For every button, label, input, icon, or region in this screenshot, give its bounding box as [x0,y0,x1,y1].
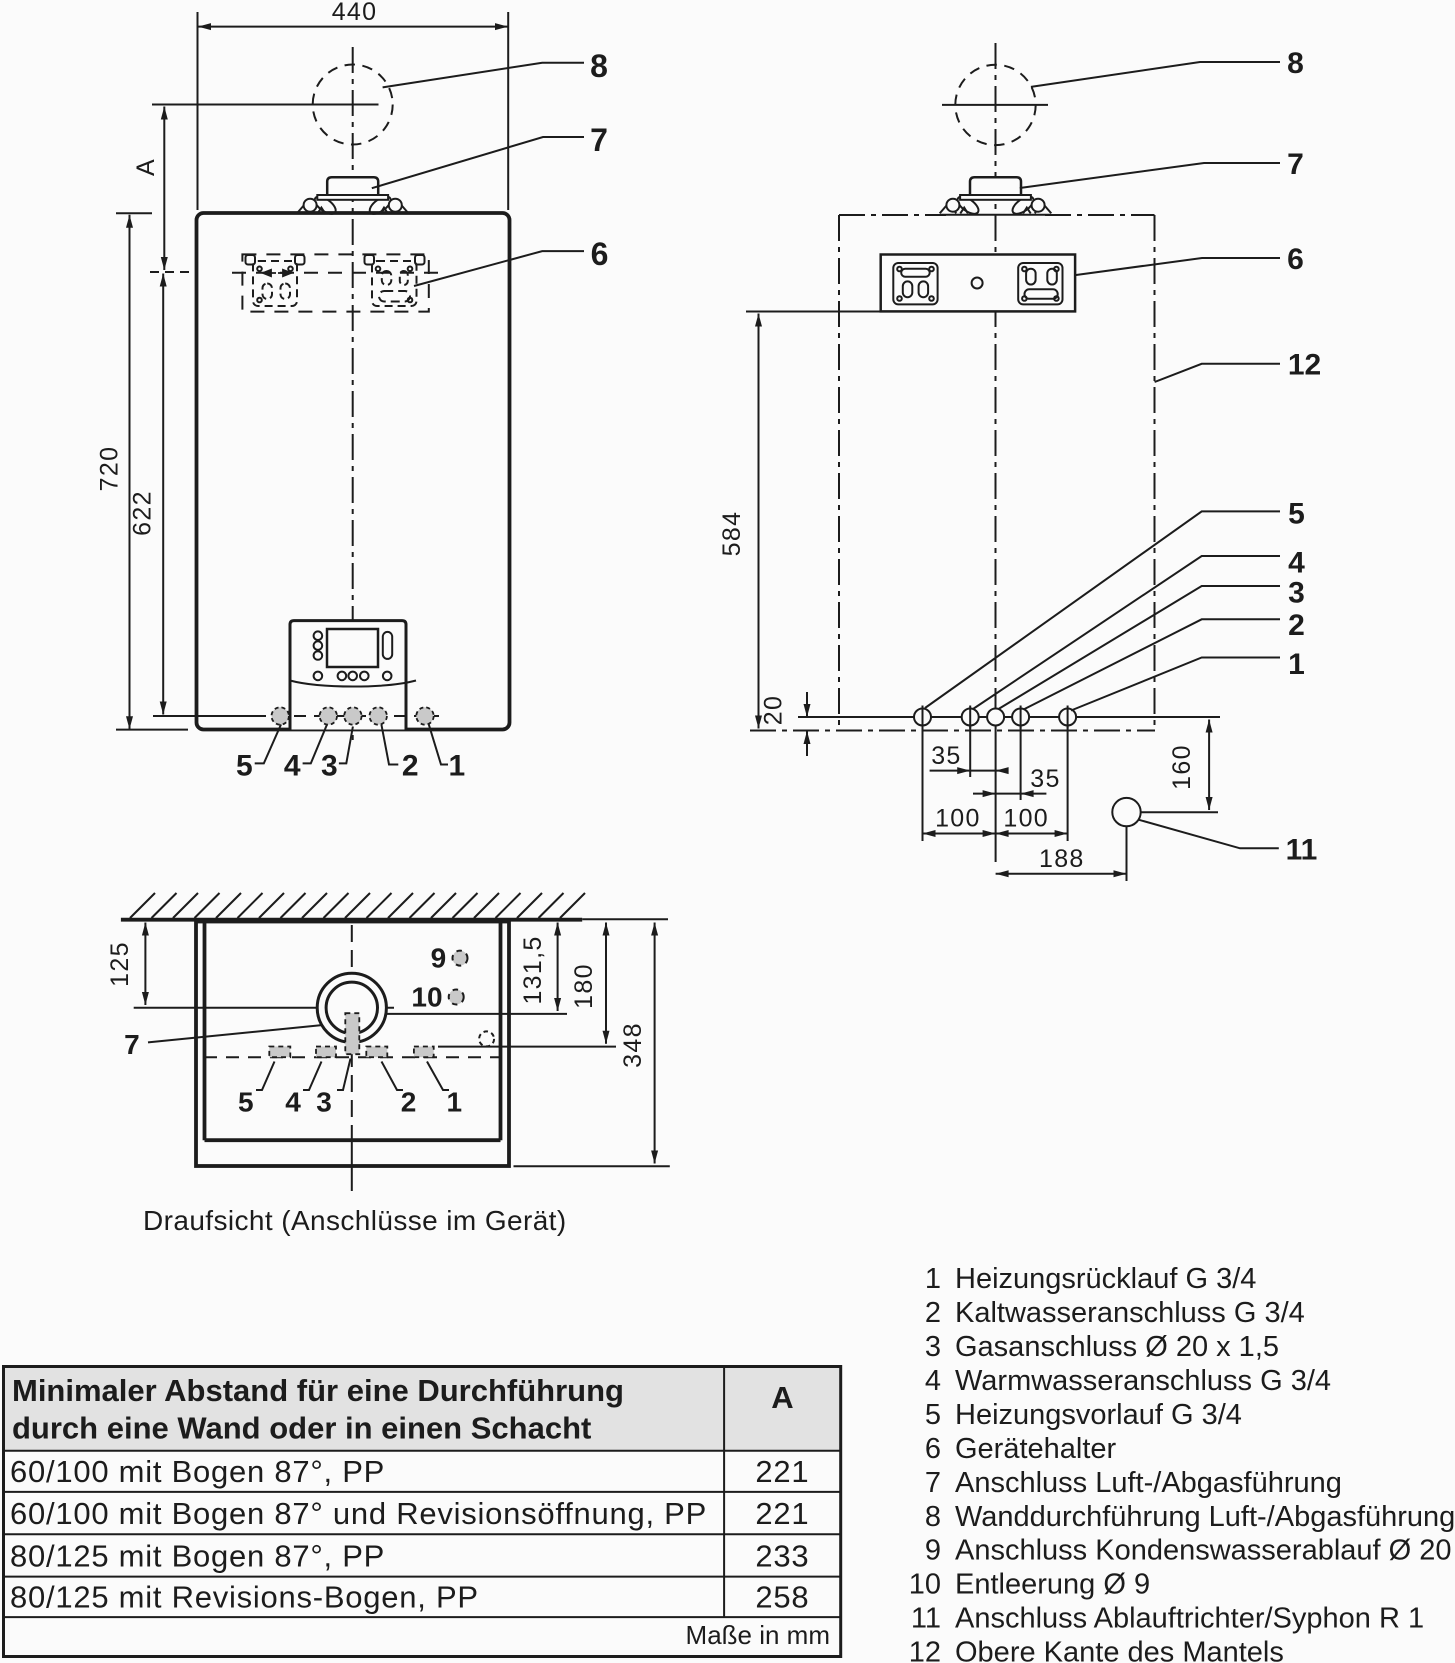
svg-text:9: 9 [431,943,447,974]
svg-text:100: 100 [1003,805,1049,833]
svg-text:11: 11 [1286,834,1318,867]
svg-text:4: 4 [925,1365,941,1397]
svg-text:Gasanschluss Ø 20 x 1,5: Gasanschluss Ø 20 x 1,5 [955,1331,1279,1363]
svg-text:5: 5 [238,1086,254,1117]
svg-text:1: 1 [1288,648,1305,681]
svg-text:12: 12 [909,1637,941,1663]
svg-text:100: 100 [935,805,981,833]
svg-text:720: 720 [96,446,124,492]
svg-text:160: 160 [1168,744,1196,790]
svg-text:4: 4 [285,1086,301,1117]
svg-text:60/100 mit Bogen 87° und Revis: 60/100 mit Bogen 87° und Revisionsöffnun… [10,1496,707,1531]
svg-text:7: 7 [590,122,608,158]
svg-text:80/125 mit Bogen 87°, PP: 80/125 mit Bogen 87°, PP [10,1538,385,1573]
svg-text:2: 2 [925,1297,941,1329]
svg-text:622: 622 [128,490,156,536]
svg-text:3: 3 [925,1331,941,1363]
svg-text:durch eine Wand oder in einen: durch eine Wand oder in einen Schacht [12,1411,591,1446]
svg-text:Warmwasseranschluss G 3/4: Warmwasseranschluss G 3/4 [955,1365,1331,1397]
svg-text:3: 3 [316,1086,332,1117]
svg-text:3: 3 [321,750,338,783]
svg-text:12: 12 [1288,349,1321,382]
svg-text:5: 5 [1288,498,1305,531]
svg-text:7: 7 [124,1029,140,1060]
svg-text:Maße in mm: Maße in mm [686,1620,830,1650]
svg-text:6: 6 [1287,243,1304,276]
svg-text:20: 20 [760,695,788,725]
svg-text:10: 10 [411,982,442,1013]
svg-text:11: 11 [911,1603,941,1635]
svg-text:188: 188 [1039,845,1085,873]
svg-text:221: 221 [755,1454,809,1489]
svg-text:1: 1 [447,1086,463,1117]
svg-text:Wanddurchführung Luft-/Abgasfü: Wanddurchführung Luft-/Abgasführung [955,1501,1455,1533]
svg-text:6: 6 [925,1433,941,1465]
svg-text:Minimaler Abstand für eine Dur: Minimaler Abstand für eine Durchführung [12,1373,624,1408]
svg-text:131,5: 131,5 [519,935,547,1004]
svg-text:35: 35 [931,742,961,770]
svg-text:Entleerung Ø 9: Entleerung Ø 9 [955,1569,1150,1601]
svg-text:1: 1 [925,1263,941,1295]
svg-text:440: 440 [332,0,378,26]
svg-text:9: 9 [925,1535,941,1567]
svg-text:Kaltwasseranschluss G 3/4: Kaltwasseranschluss G 3/4 [955,1297,1305,1329]
svg-text:2: 2 [1288,609,1305,642]
svg-text:7: 7 [925,1467,941,1499]
svg-text:Anschluss Kondenswasserablauf: Anschluss Kondenswasserablauf Ø 20 [955,1535,1452,1567]
svg-text:6: 6 [591,236,609,272]
svg-text:7: 7 [1287,148,1304,181]
svg-text:Obere Kante des Mantels: Obere Kante des Mantels [955,1637,1284,1663]
svg-text:2: 2 [402,750,419,783]
svg-text:Gerätehalter: Gerätehalter [955,1433,1117,1465]
svg-text:221: 221 [755,1496,809,1531]
svg-text:4: 4 [1288,547,1305,580]
svg-text:Anschluss Luft-/Abgasführung: Anschluss Luft-/Abgasführung [955,1467,1342,1499]
svg-text:60/100 mit Bogen 87°, PP: 60/100 mit Bogen 87°, PP [10,1454,385,1489]
svg-text:233: 233 [755,1538,809,1573]
svg-text:125: 125 [106,941,134,987]
svg-text:5: 5 [236,750,253,783]
svg-text:Draufsicht (Anschlüsse im Gerä: Draufsicht (Anschlüsse im Gerät) [143,1205,567,1236]
svg-text:80/125 mit Revisions-Bogen, PP: 80/125 mit Revisions-Bogen, PP [10,1580,479,1615]
svg-text:8: 8 [925,1501,941,1533]
svg-text:8: 8 [1287,47,1304,80]
svg-text:Heizungsvorlauf G 3/4: Heizungsvorlauf G 3/4 [955,1399,1242,1431]
svg-text:A: A [132,158,160,176]
svg-text:1: 1 [448,750,465,783]
svg-text:348: 348 [619,1022,647,1068]
svg-text:4: 4 [284,750,301,783]
svg-text:180: 180 [570,963,598,1009]
svg-text:Anschluss Ablauftrichter/Sypho: Anschluss Ablauftrichter/Syphon R 1 [955,1603,1424,1635]
svg-text:10: 10 [909,1569,941,1601]
svg-text:Heizungsrücklauf G 3/4: Heizungsrücklauf G 3/4 [955,1263,1256,1295]
svg-text:2: 2 [401,1086,417,1117]
svg-text:3: 3 [1288,577,1305,610]
svg-text:258: 258 [755,1580,809,1615]
svg-text:8: 8 [590,48,608,84]
svg-text:584: 584 [718,511,746,557]
svg-text:35: 35 [1030,765,1060,793]
svg-text:A: A [771,1380,793,1415]
svg-text:5: 5 [925,1399,941,1431]
